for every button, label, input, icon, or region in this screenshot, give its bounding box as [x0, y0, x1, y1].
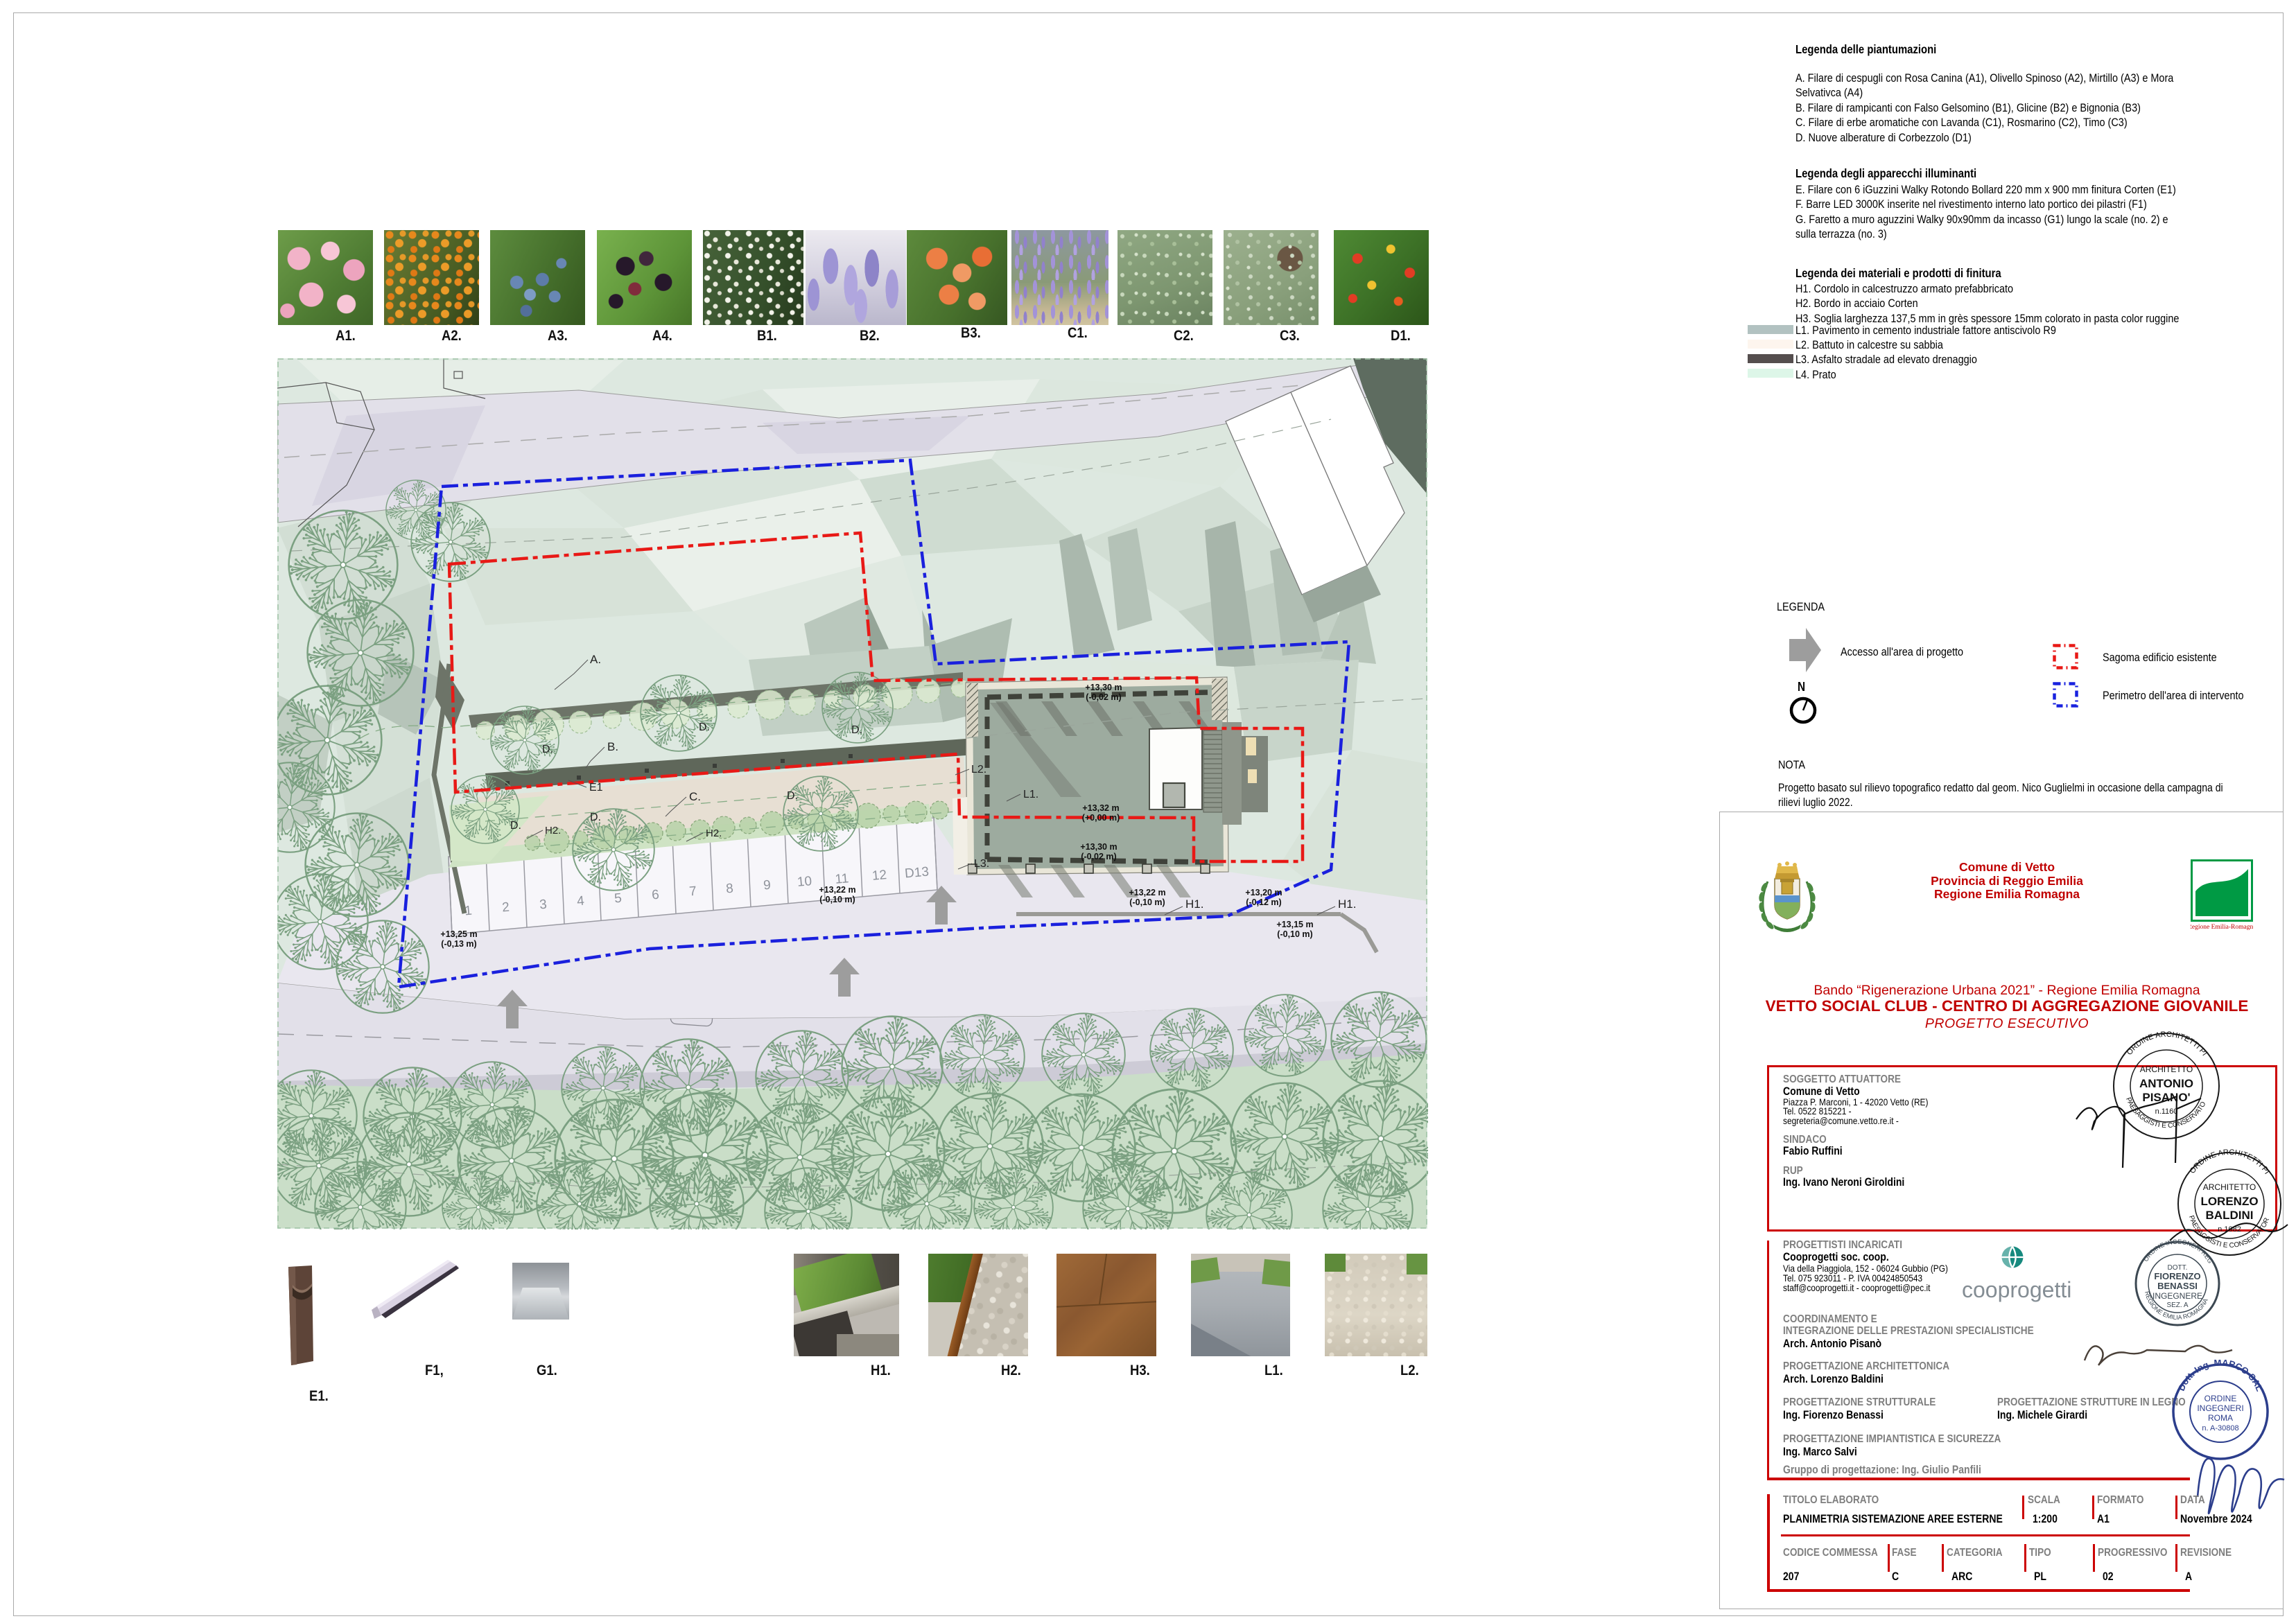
- svg-text:(-0,10 m): (-0,10 m): [1129, 897, 1165, 907]
- svg-text:Dott. Ing. MARCO SALVI: Dott. Ing. MARCO SALVI: [2168, 1360, 2265, 1393]
- svg-text:D13: D13: [904, 865, 930, 882]
- svg-text:B.: B.: [607, 740, 618, 753]
- svg-text:H2.: H2.: [545, 825, 561, 836]
- svg-text:ORDINE ARCHITETTI PIANIFICAT: ORDINE ARCHITETTI PIANIFICATORI: [2174, 1148, 2271, 1176]
- svg-text:(+0,00 m): (+0,00 m): [1082, 813, 1120, 823]
- svg-text:L3.: L3.: [974, 858, 989, 870]
- svg-text:ARCHITETTO: ARCHITETTO: [2203, 1182, 2256, 1192]
- svg-text:D.: D.: [851, 724, 862, 736]
- svg-text:INGEGNERE: INGEGNERE: [2152, 1291, 2202, 1301]
- svg-text:D.: D.: [542, 744, 553, 755]
- svg-text:+13,22 m: +13,22 m: [819, 885, 855, 895]
- svg-text:(-0,10 m): (-0,10 m): [819, 895, 855, 904]
- svg-text:D.: D.: [590, 812, 601, 823]
- svg-text:H1.: H1.: [1338, 897, 1356, 911]
- svg-text:+13,20 m: +13,20 m: [1245, 888, 1282, 897]
- svg-text:L1.: L1.: [1023, 789, 1038, 800]
- svg-text:+13,30 m: +13,30 m: [1080, 842, 1117, 852]
- svg-text:+13,15 m: +13,15 m: [1276, 920, 1313, 929]
- svg-text:L2.: L2.: [971, 764, 986, 776]
- svg-text:E1: E1: [589, 782, 603, 794]
- svg-text:BENASSI: BENASSI: [2157, 1281, 2198, 1291]
- svg-text:D.: D.: [787, 790, 798, 802]
- svg-text:2: 2: [501, 900, 510, 915]
- svg-text:12: 12: [871, 868, 887, 884]
- svg-text:SEZ. A: SEZ. A: [2166, 1302, 2188, 1309]
- svg-text:10: 10: [797, 874, 812, 890]
- svg-text:(-0,10 m): (-0,10 m): [1277, 929, 1312, 939]
- svg-text:(-0,02 m): (-0,02 m): [1081, 852, 1116, 861]
- svg-text:D.: D.: [699, 721, 710, 733]
- svg-text:H1.: H1.: [1185, 897, 1203, 911]
- svg-text:3: 3: [539, 897, 547, 913]
- svg-text:(-0,02 m): (-0,02 m): [1086, 692, 1121, 702]
- svg-text:(-0,13 m): (-0,13 m): [441, 939, 476, 949]
- svg-text:C.: C.: [689, 790, 701, 803]
- svg-text:ORDINE: ORDINE: [2204, 1394, 2237, 1403]
- svg-text:n. A-30808: n. A-30808: [2202, 1424, 2238, 1432]
- svg-text:8: 8: [725, 882, 733, 897]
- svg-text:+13,30 m: +13,30 m: [1085, 683, 1122, 692]
- svg-text:ROMA: ROMA: [2208, 1413, 2233, 1423]
- svg-text:Regione Emilia-Romagna: Regione Emilia-Romagna: [2191, 924, 2253, 931]
- svg-text:H2.: H2.: [706, 827, 722, 839]
- svg-text:9: 9: [763, 878, 771, 893]
- svg-text:+13,25 m: +13,25 m: [440, 929, 477, 939]
- svg-text:6: 6: [651, 888, 659, 903]
- svg-text:5: 5: [614, 891, 622, 906]
- svg-text:D.: D.: [510, 820, 521, 832]
- svg-text:+13,22 m: +13,22 m: [1129, 888, 1165, 897]
- svg-text:FIORENZO: FIORENZO: [2154, 1271, 2200, 1281]
- svg-text:A.: A.: [590, 653, 601, 666]
- svg-text:(-0,12 m): (-0,12 m): [1246, 897, 1281, 907]
- svg-text:INGEGNERI: INGEGNERI: [2197, 1403, 2243, 1413]
- svg-text:+13,32 m: +13,32 m: [1082, 803, 1119, 813]
- svg-text:ARCHITETTO: ARCHITETTO: [2140, 1064, 2193, 1074]
- svg-text:7: 7: [688, 884, 697, 900]
